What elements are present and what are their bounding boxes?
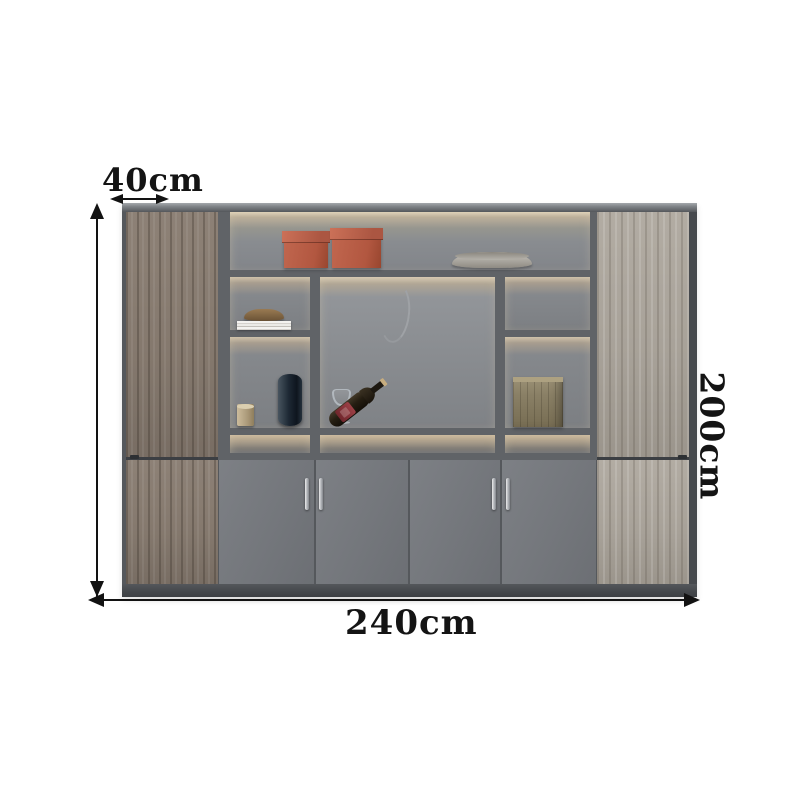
arrow-left-icon <box>110 194 123 204</box>
storage-box-lid <box>330 228 383 240</box>
left-lower-compartment <box>230 337 310 428</box>
height-dimension-label: 200cm <box>696 372 729 464</box>
top-shelf-compartment <box>230 212 590 270</box>
left-wood-door-lower <box>126 460 218 584</box>
blue-vase <box>278 374 302 426</box>
cabinet <box>122 203 697 597</box>
bronze-bowl <box>244 309 284 321</box>
left-wood-door-upper <box>126 212 218 457</box>
right-lower-compartment <box>505 337 590 428</box>
decorative-platter <box>452 252 532 268</box>
left-door-handle-notch <box>130 455 139 459</box>
magazine-stack <box>237 321 291 330</box>
arrow-right-icon <box>156 194 169 204</box>
center-compartment <box>320 277 495 428</box>
cabinet-base <box>122 584 697 597</box>
right-door-handle-notch <box>678 455 687 459</box>
cabinet-top-panel <box>122 203 697 212</box>
depth-dimension-label: 40cm <box>102 164 204 196</box>
strip-compartment-center <box>320 435 495 453</box>
wine-bottle-label-art <box>339 407 350 418</box>
strip-compartment-right <box>505 435 590 453</box>
lower-door-2 <box>316 460 408 584</box>
storage-box-left <box>284 231 328 268</box>
height-dimension-line <box>96 207 98 597</box>
storage-box-right <box>332 228 381 268</box>
door-handle <box>305 478 309 510</box>
storage-box-lid <box>282 231 330 243</box>
arrow-up-icon <box>90 203 104 219</box>
platter-rim <box>455 252 529 260</box>
lower-door-1 <box>219 460 314 584</box>
width-dimension-line <box>101 599 687 601</box>
door-handle <box>506 478 510 510</box>
candle <box>237 404 254 426</box>
right-wood-door-upper <box>597 212 689 457</box>
product-dimension-image: 40cm 200cm 240cm <box>0 0 800 800</box>
lower-door-4 <box>502 460 596 584</box>
wooden-crate-top <box>513 377 563 382</box>
arrow-right-icon <box>684 593 700 607</box>
left-upper-compartment <box>230 277 310 330</box>
arrow-left-icon <box>88 593 104 607</box>
right-wood-door-lower <box>597 460 689 584</box>
width-dimension-label: 240cm <box>345 606 465 640</box>
candle-top <box>237 404 254 409</box>
door-handle <box>492 478 496 510</box>
open-shelving <box>218 212 597 460</box>
wooden-crate <box>513 377 563 427</box>
bottle-stand <box>377 282 413 345</box>
right-upper-compartment <box>505 277 590 330</box>
door-handle <box>319 478 323 510</box>
lower-door-3 <box>410 460 500 584</box>
strip-compartment-left <box>230 435 310 453</box>
